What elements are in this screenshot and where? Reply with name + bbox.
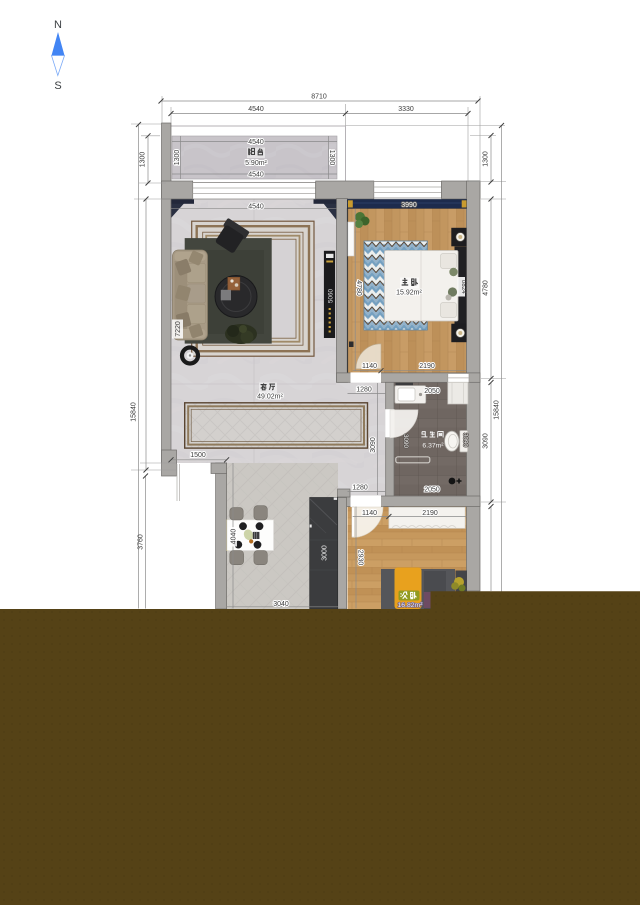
svg-text:3040: 3040: [273, 601, 289, 608]
svg-text:8710: 8710: [311, 94, 327, 101]
svg-text:2190: 2190: [419, 363, 435, 370]
svg-text:2050: 2050: [424, 487, 440, 494]
svg-text:2930: 2930: [357, 550, 364, 566]
svg-text:1300: 1300: [174, 150, 181, 166]
svg-text:15840: 15840: [494, 400, 501, 420]
svg-text:4780: 4780: [355, 280, 362, 296]
svg-text:5060: 5060: [327, 289, 334, 304]
svg-text:49.02m²: 49.02m²: [257, 394, 283, 401]
svg-text:1300: 1300: [328, 150, 335, 166]
svg-text:15.92m²: 15.92m²: [396, 290, 422, 297]
svg-text:4540: 4540: [248, 139, 264, 146]
svg-text:3090: 3090: [370, 437, 377, 453]
svg-text:1140: 1140: [362, 363, 377, 370]
svg-text:0824: 0824: [460, 280, 467, 295]
svg-text:3760: 3760: [138, 534, 145, 550]
svg-text:4780: 4780: [483, 280, 490, 296]
svg-text:16.82m²: 16.82m²: [398, 602, 424, 609]
svg-text:6.37m²: 6.37m²: [422, 443, 444, 450]
svg-text:15840: 15840: [131, 402, 138, 422]
svg-text:3000: 3000: [322, 545, 329, 561]
svg-text:1280: 1280: [356, 386, 372, 393]
svg-text:1140: 1140: [362, 510, 377, 517]
svg-text:7220: 7220: [175, 321, 182, 337]
svg-text:S: S: [54, 80, 61, 92]
svg-text:3090: 3090: [402, 434, 409, 449]
svg-text:1500: 1500: [190, 452, 206, 459]
svg-text:4040: 4040: [231, 529, 238, 545]
svg-text:3090: 3090: [462, 433, 469, 448]
svg-text:4540: 4540: [248, 171, 264, 178]
svg-text:3090: 3090: [483, 433, 490, 449]
svg-text:5.90m²: 5.90m²: [245, 160, 267, 167]
svg-text:2190: 2190: [422, 510, 438, 517]
svg-text:4540: 4540: [248, 203, 264, 210]
svg-text:N: N: [54, 19, 62, 31]
svg-text:2050: 2050: [424, 388, 440, 395]
svg-text:4540: 4540: [248, 106, 264, 113]
svg-text:1300: 1300: [483, 151, 490, 167]
svg-text:1280: 1280: [352, 484, 368, 491]
svg-text:3990: 3990: [401, 202, 417, 209]
svg-text:3330: 3330: [398, 106, 414, 113]
svg-text:1300: 1300: [140, 152, 147, 168]
